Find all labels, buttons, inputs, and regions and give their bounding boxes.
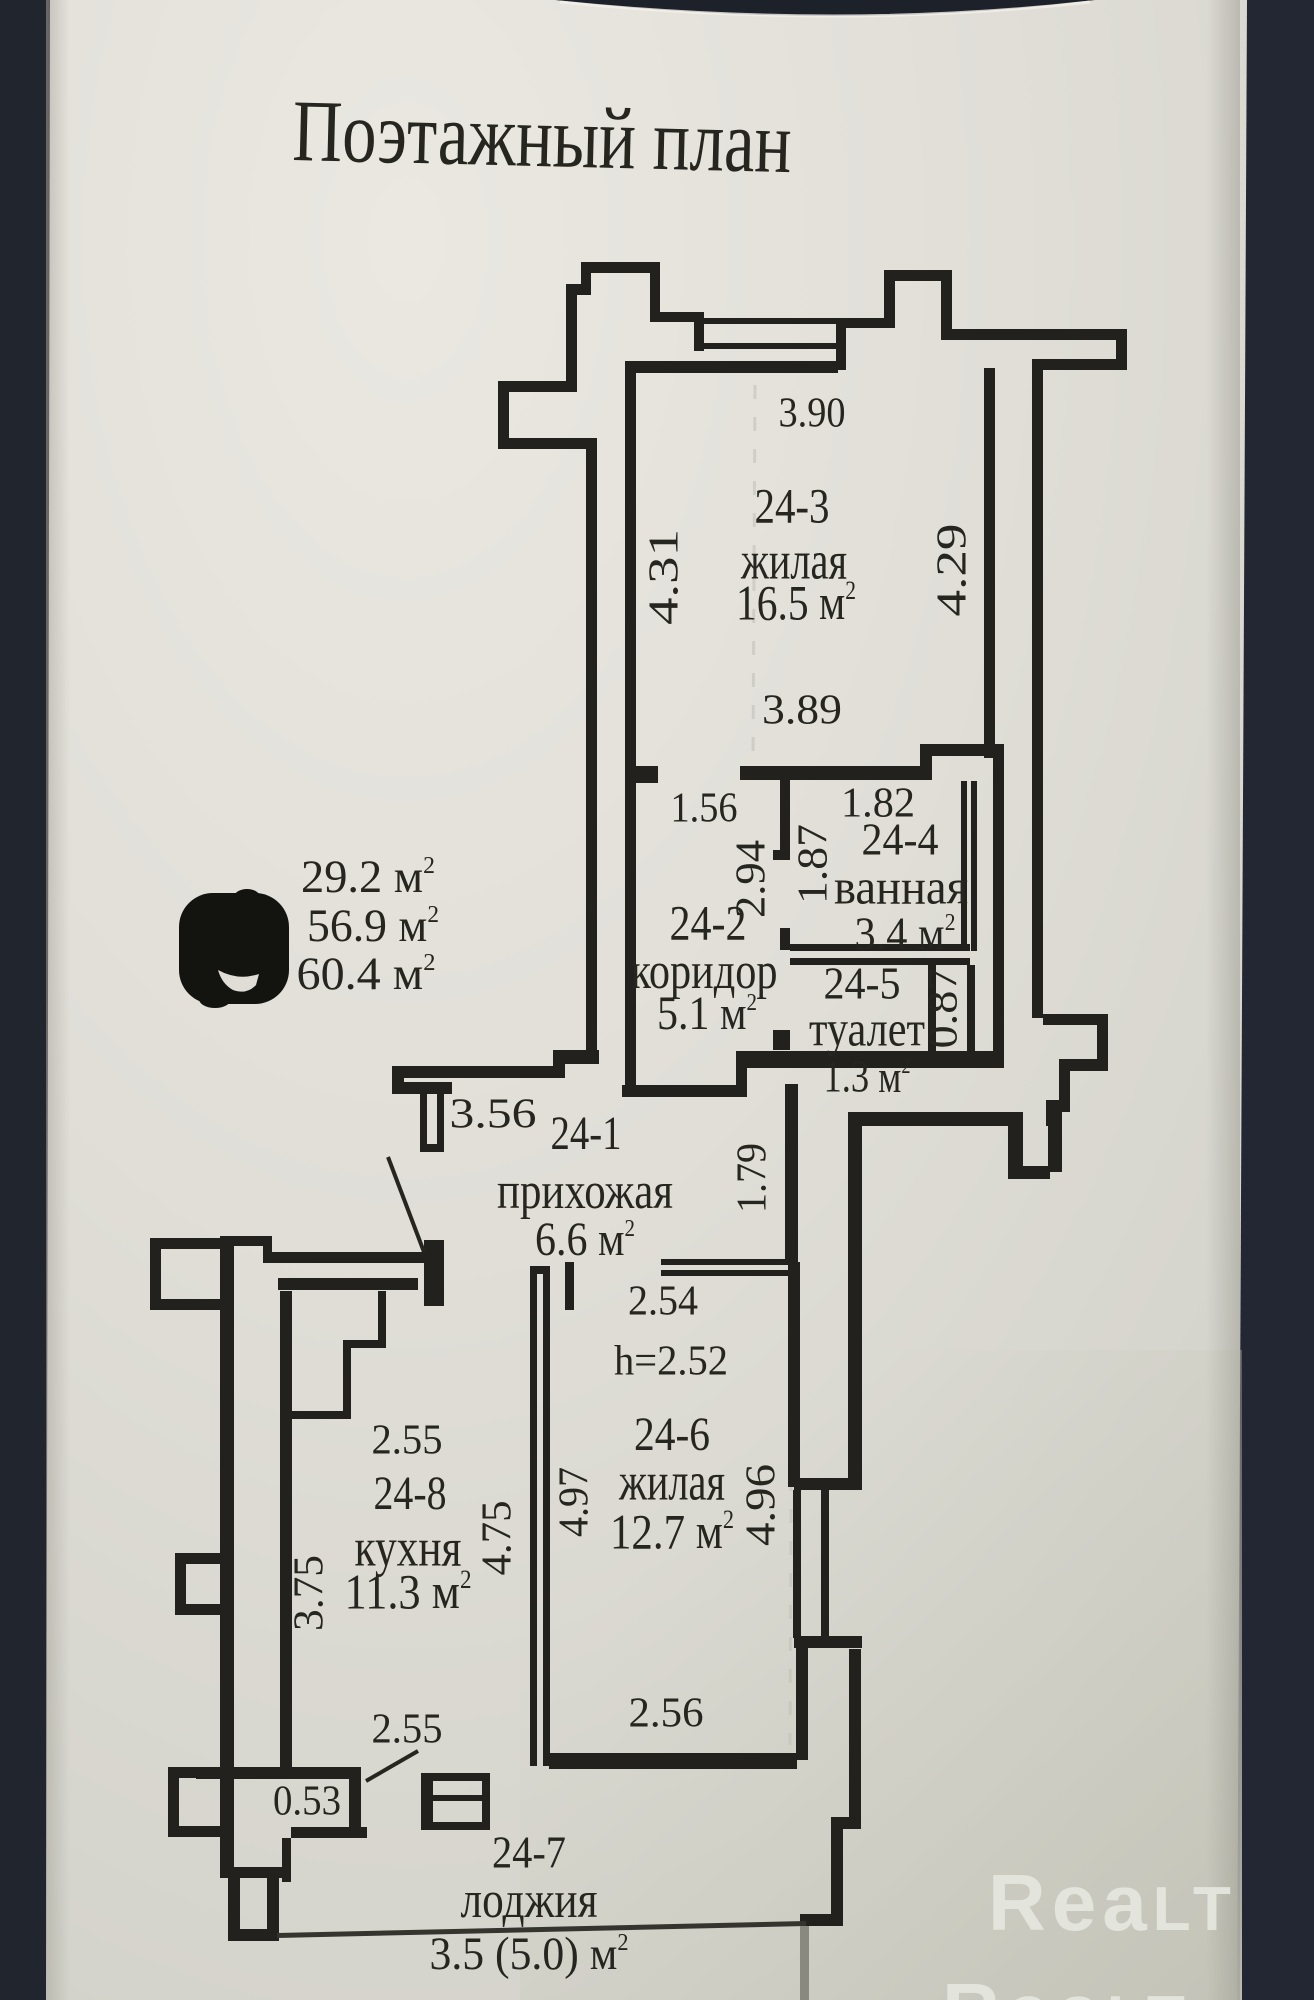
svg-text:4.96: 4.96 [739,1464,785,1546]
svg-text:3.56: 3.56 [450,1092,537,1138]
svg-text:4.75: 4.75 [475,1501,521,1576]
svg-text:3.4 м2: 3.4 м2 [855,908,956,960]
svg-text:12.7 м2: 12.7 м2 [610,1503,734,1559]
svg-text:ванная: ванная [834,858,968,914]
svg-text:2.54: 2.54 [628,1279,698,1325]
svg-text:0.53: 0.53 [273,1779,341,1825]
svg-text:11.3 м2: 11.3 м2 [345,1563,472,1619]
svg-text:24-3: 24-3 [755,477,830,533]
svg-text:h=2.52: h=2.52 [614,1339,728,1385]
svg-text:24-7: 24-7 [492,1827,566,1878]
svg-text:56.9 м2: 56.9 м2 [307,900,439,952]
svg-text:3.5 (5.0) м2: 3.5 (5.0) м2 [430,1928,629,1980]
svg-text:3.89: 3.89 [762,688,842,734]
svg-text:2.55: 2.55 [372,1707,443,1753]
svg-text:4.97: 4.97 [552,1467,598,1537]
svg-text:2.56: 2.56 [629,1691,704,1737]
svg-text:1.3 м2: 1.3 м2 [824,1051,911,1102]
svg-text:6.6 м2: 6.6 м2 [535,1213,635,1266]
svg-text:24-1: 24-1 [551,1107,622,1160]
svg-text:жилая: жилая [618,1451,725,1511]
svg-text:лоджия: лоджия [461,1872,598,1929]
svg-text:4.31: 4.31 [642,529,688,625]
svg-text:5.1 м2: 5.1 м2 [657,987,757,1040]
svg-text:3.90: 3.90 [779,391,846,437]
svg-text:прихожая: прихожая [497,1163,673,1220]
svg-text:туалет: туалет [809,1000,925,1056]
svg-text:24-8: 24-8 [374,1467,447,1520]
svg-text:1.79: 1.79 [730,1143,776,1213]
svg-text:16.5 м2: 16.5 м2 [736,574,856,630]
svg-text:24-4: 24-4 [862,814,939,865]
svg-text:0.87: 0.87 [921,968,967,1049]
svg-text:3.75: 3.75 [287,1555,333,1631]
svg-text:4.29: 4.29 [930,524,976,617]
svg-text:1.87: 1.87 [791,824,837,904]
svg-text:60.4 м2: 60.4 м2 [297,948,436,1000]
svg-text:Поэтажный план: Поэтажный план [292,83,793,192]
svg-text:29.2 м2: 29.2 м2 [301,851,435,903]
svg-text:1.56: 1.56 [671,786,738,832]
svg-text:2.55: 2.55 [372,1418,443,1464]
